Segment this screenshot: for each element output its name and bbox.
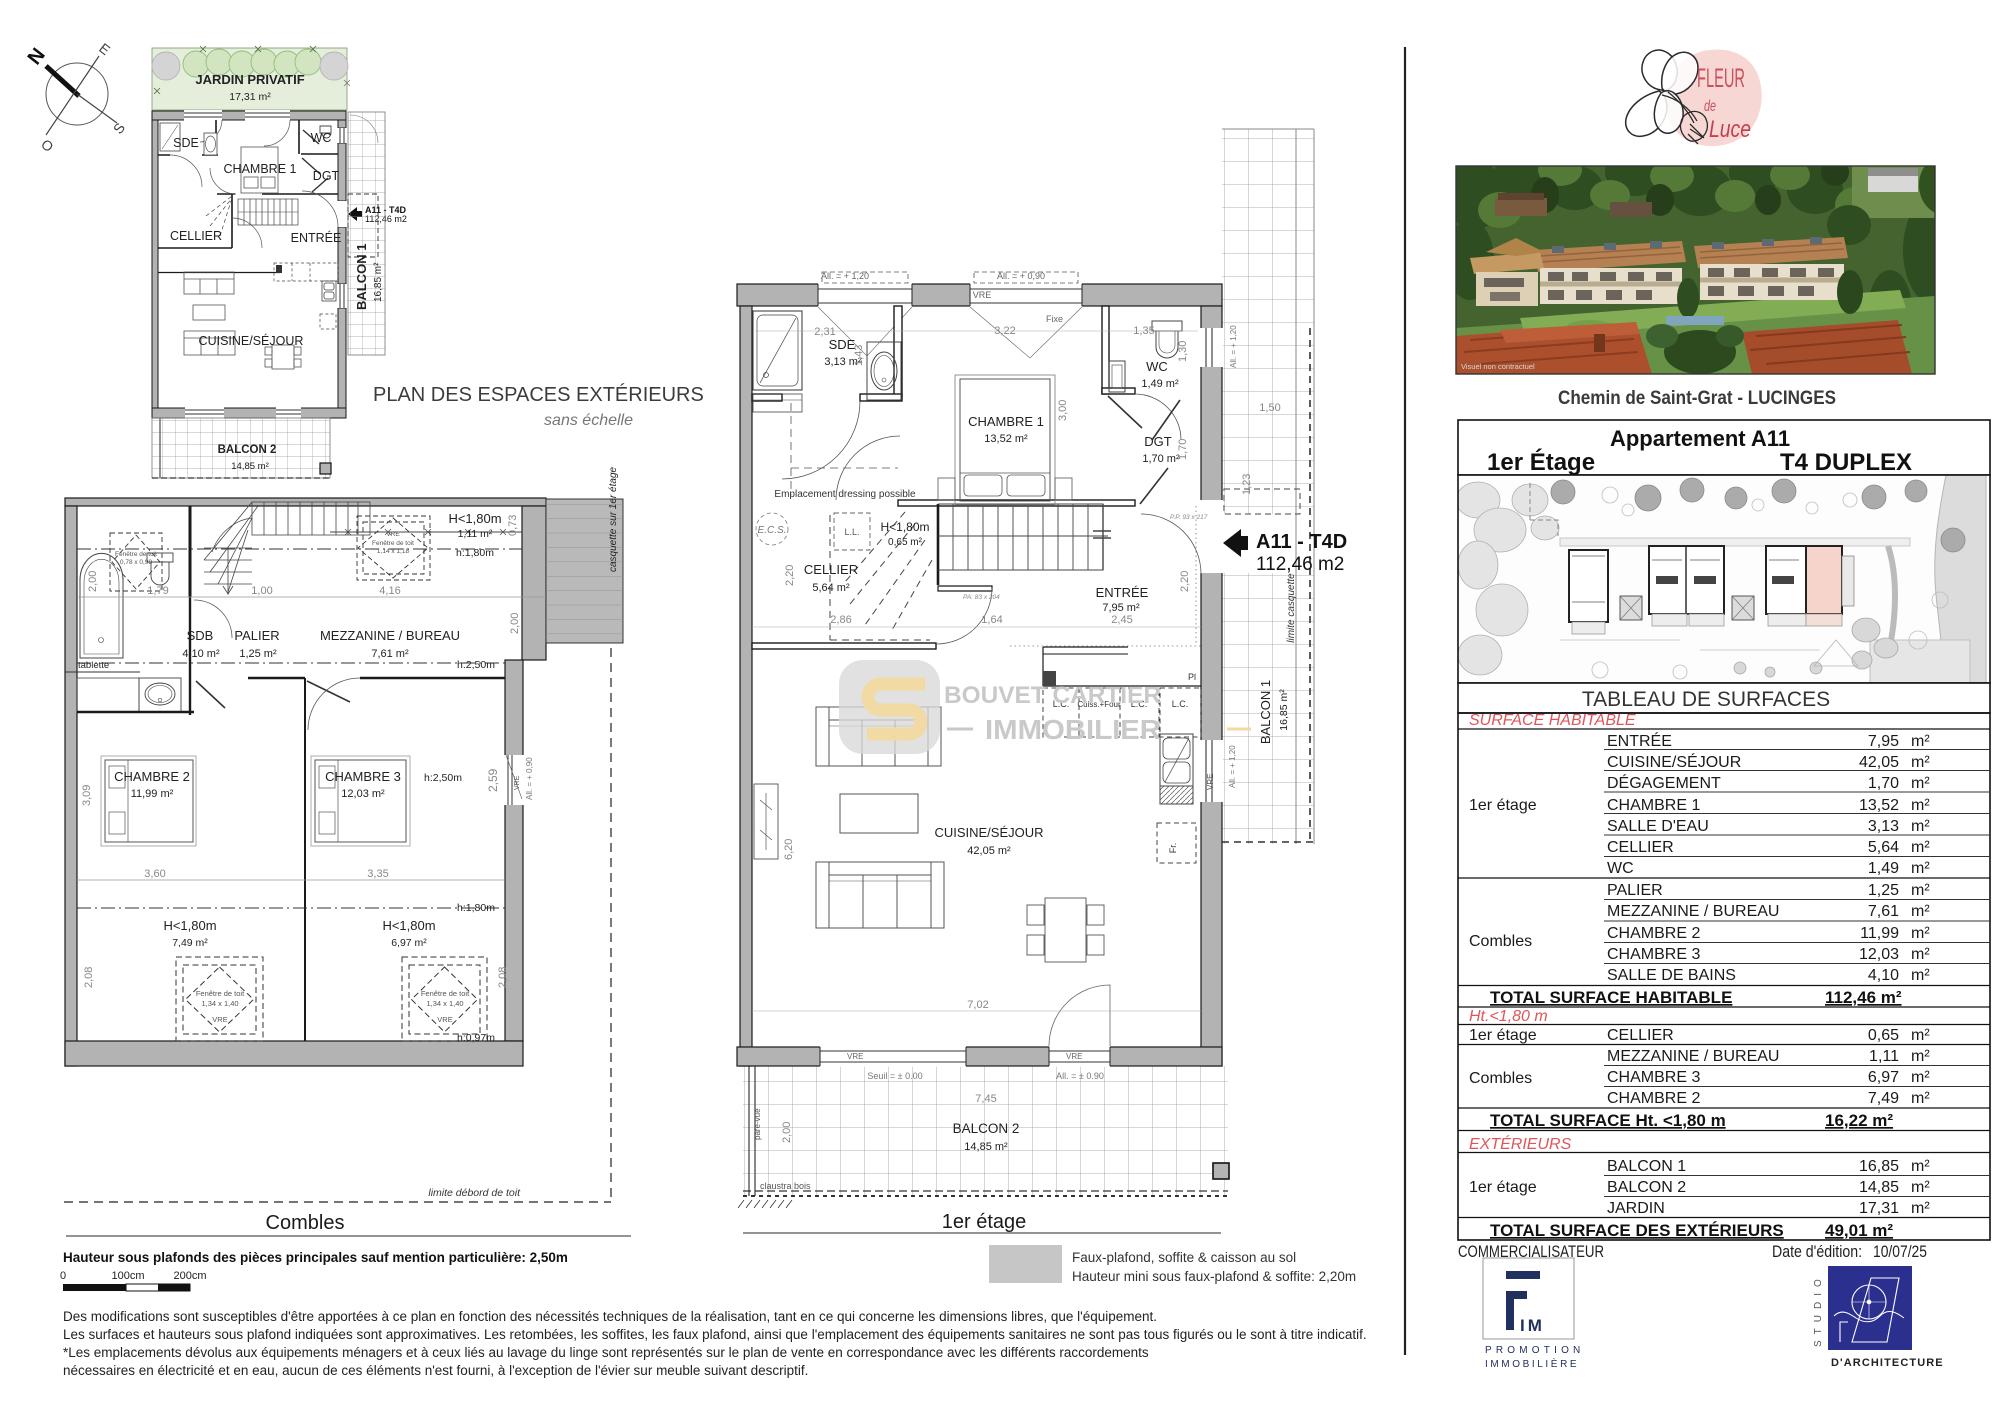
svg-text:Ht.<1,80 m: Ht.<1,80 m <box>1469 1008 1548 1025</box>
svg-text:13,52 m²: 13,52 m² <box>984 433 1028 445</box>
svg-text:ENTRÉE: ENTRÉE <box>1096 585 1149 600</box>
svg-text:BALCON 2: BALCON 2 <box>953 1121 1020 1136</box>
svg-text:IMMOBILIER: IMMOBILIER <box>985 714 1161 745</box>
svg-text:VRE: VRE <box>437 1015 452 1024</box>
svg-text:Fenêtre de toit: Fenêtre de toit <box>372 540 414 547</box>
svg-text:0,78 x 0,98: 0,78 x 0,98 <box>120 559 153 566</box>
svg-text:10/07/25: 10/07/25 <box>1873 1242 1927 1261</box>
svg-text:m²: m² <box>1911 1027 1930 1044</box>
svg-text:5,64 m²: 5,64 m² <box>812 582 850 594</box>
svg-text:1,64: 1,64 <box>981 614 1002 626</box>
svg-text:1,34 x 1,40: 1,34 x 1,40 <box>426 999 463 1008</box>
svg-text:3,22: 3,22 <box>994 325 1015 337</box>
svg-text:nécessaires en électricité et: nécessaires en électricité et en eau, au… <box>63 1363 808 1378</box>
svg-text:2,08: 2,08 <box>497 967 509 988</box>
svg-text:TABLEAU DE SURFACES: TABLEAU DE SURFACES <box>1582 688 1830 711</box>
svg-text:Hauteur mini sous faux-plafond: Hauteur mini sous faux-plafond & soffite… <box>1072 1269 1356 1284</box>
svg-text:16,22 m²: 16,22 m² <box>1825 1111 1893 1130</box>
svg-text:49,01 m²: 49,01 m² <box>1825 1221 1893 1240</box>
svg-text:Des modifications sont suscept: Des modifications sont susceptibles d'êt… <box>63 1309 1157 1324</box>
svg-text:3,09: 3,09 <box>81 785 93 806</box>
svg-text:All. = + 1,20: All. = + 1,20 <box>821 271 869 281</box>
svg-text:D'ARCHITECTURE: D'ARCHITECTURE <box>1831 1357 1944 1369</box>
svg-text:2,86: 2,86 <box>830 614 851 626</box>
svg-text:2,08: 2,08 <box>83 967 95 988</box>
svg-text:m²: m² <box>1911 967 1930 984</box>
svg-text:DGT: DGT <box>1144 434 1172 449</box>
svg-text:BALCON 2: BALCON 2 <box>218 444 277 456</box>
svg-text:m²: m² <box>1911 818 1930 835</box>
svg-text:7,02: 7,02 <box>967 999 988 1011</box>
svg-text:casquette sur 1er étage: casquette sur 1er étage <box>608 466 619 572</box>
svg-text:Fr.: Fr. <box>1168 843 1178 854</box>
svg-text:Emplacement dressing possible: Emplacement dressing possible <box>774 489 916 500</box>
svg-text:7,95: 7,95 <box>1868 733 1899 750</box>
svg-text:A11 - T4D: A11 - T4D <box>1256 531 1347 553</box>
svg-text:CUISINE/SÉJOUR: CUISINE/SÉJOUR <box>1607 752 1741 771</box>
svg-text:3,35: 3,35 <box>367 868 388 880</box>
svg-text:MEZZANINE / BUREAU: MEZZANINE / BUREAU <box>1607 1048 1779 1065</box>
svg-text:m²: m² <box>1911 1090 1930 1107</box>
svg-text:CHAMBRE 2: CHAMBRE 2 <box>1607 925 1700 942</box>
svg-text:1,43: 1,43 <box>853 345 865 366</box>
svg-text:VRE: VRE <box>386 531 400 538</box>
svg-text:1er étage: 1er étage <box>1469 1027 1537 1044</box>
svg-text:pare-vue: pare-vue <box>753 1108 762 1140</box>
svg-text:3,60: 3,60 <box>144 868 165 880</box>
svg-text:SDE: SDE <box>829 337 856 352</box>
svg-text:CHAMBRE 1: CHAMBRE 1 <box>224 162 297 176</box>
svg-text:12,03 m²: 12,03 m² <box>341 788 385 800</box>
svg-text:PALIER: PALIER <box>234 628 279 643</box>
svg-text:0: 0 <box>60 1270 66 1282</box>
svg-text:H<1,80m: H<1,80m <box>163 918 216 933</box>
svg-text:4,16: 4,16 <box>379 585 400 597</box>
svg-text:1,49: 1,49 <box>1868 860 1899 877</box>
svg-text:2,31: 2,31 <box>814 326 835 338</box>
svg-text:Appartement A11: Appartement A11 <box>1610 426 1790 451</box>
svg-text:BALCON 1: BALCON 1 <box>1258 680 1273 744</box>
svg-text:WC: WC <box>1607 860 1634 877</box>
svg-text:PA: 83 x 204: PA: 83 x 204 <box>963 594 1000 601</box>
svg-text:16,85 m²: 16,85 m² <box>1278 689 1290 731</box>
svg-text:L.L.: L.L. <box>844 527 859 537</box>
svg-text:Pl: Pl <box>1188 672 1196 682</box>
svg-text:CHAMBRE 2: CHAMBRE 2 <box>1607 1090 1700 1107</box>
svg-text:SURFACE HABITABLE: SURFACE HABITABLE <box>1469 712 1636 729</box>
svg-text:1er étage: 1er étage <box>942 1211 1027 1233</box>
svg-text:m²: m² <box>1911 1200 1930 1217</box>
svg-text:6,20: 6,20 <box>783 839 795 860</box>
svg-text:sans échelle: sans échelle <box>544 412 633 429</box>
svg-text:IMMOBILIÈRE: IMMOBILIÈRE <box>1485 1357 1579 1370</box>
svg-text:1,70 m²: 1,70 m² <box>1142 453 1180 465</box>
svg-text:0,65: 0,65 <box>1868 1027 1899 1044</box>
svg-text:Combles: Combles <box>266 1212 345 1234</box>
svg-text:7,49: 7,49 <box>1868 1090 1899 1107</box>
svg-text:42,05 m²: 42,05 m² <box>967 845 1011 857</box>
svg-text:m²: m² <box>1911 775 1930 792</box>
svg-text:14,85: 14,85 <box>1859 1179 1899 1196</box>
svg-text:STUDIO: STUDIO <box>1813 1273 1824 1347</box>
svg-text:h:2,50m: h:2,50m <box>424 772 462 784</box>
svg-text:All. = + 1,20: All. = + 1,20 <box>1229 325 1238 368</box>
svg-text:12,03: 12,03 <box>1859 946 1899 963</box>
svg-text:CELLIER: CELLIER <box>1607 1027 1674 1044</box>
svg-text:1,70: 1,70 <box>1868 775 1899 792</box>
svg-text:4,10 m²: 4,10 m² <box>182 648 220 660</box>
svg-text:m²: m² <box>1911 733 1930 750</box>
svg-text:CUISINE/SÉJOUR: CUISINE/SÉJOUR <box>199 333 304 348</box>
svg-text:1er Étage: 1er Étage <box>1487 448 1595 476</box>
svg-text:14,85 m²: 14,85 m² <box>231 461 269 472</box>
svg-text:7,49 m²: 7,49 m² <box>172 937 208 949</box>
svg-text:7,61: 7,61 <box>1868 903 1899 920</box>
svg-text:de: de <box>1704 98 1716 115</box>
svg-text:Fenêtre de toit: Fenêtre de toit <box>115 551 157 558</box>
svg-text:CUISINE/SÉJOUR: CUISINE/SÉJOUR <box>934 825 1043 840</box>
svg-text:m²: m² <box>1911 1158 1930 1175</box>
svg-text:Luce: Luce <box>1709 116 1751 143</box>
svg-text:BOUVET CARTIER: BOUVET CARTIER <box>944 682 1161 709</box>
svg-text:14,85 m²: 14,85 m² <box>964 1141 1008 1153</box>
svg-text:1,25 m²: 1,25 m² <box>239 648 277 660</box>
svg-text:1,00: 1,00 <box>251 585 272 597</box>
svg-text:Date d'édition:: Date d'édition: <box>1772 1242 1862 1261</box>
svg-text:16,85: 16,85 <box>1859 1158 1899 1175</box>
svg-text:L.C.: L.C. <box>1172 699 1189 709</box>
svg-text:17,31: 17,31 <box>1859 1200 1899 1217</box>
svg-text:H<1,80m: H<1,80m <box>448 511 501 526</box>
svg-text:Combles: Combles <box>1469 1070 1532 1087</box>
svg-text:P.P. 93 x 217: P.P. 93 x 217 <box>1170 514 1208 521</box>
svg-text:limite débord de toit: limite débord de toit <box>428 1187 521 1199</box>
svg-text:CHAMBRE 3: CHAMBRE 3 <box>1607 1069 1700 1086</box>
svg-text:CELLIER: CELLIER <box>1607 839 1674 856</box>
svg-text:EXTÉRIEURS: EXTÉRIEURS <box>1469 1134 1572 1153</box>
svg-text:T4 DUPLEX: T4 DUPLEX <box>1780 449 1912 476</box>
svg-text:1,50: 1,50 <box>1259 402 1280 414</box>
svg-text:JARDIN: JARDIN <box>1607 1200 1665 1217</box>
svg-text:1,11 m²: 1,11 m² <box>458 528 493 540</box>
svg-text:limite casquette: limite casquette <box>1286 573 1297 643</box>
svg-text:2,59: 2,59 <box>486 768 500 792</box>
svg-text:TOTAL SURFACE HABITABLE: TOTAL SURFACE HABITABLE <box>1490 988 1732 1007</box>
svg-text:16,85 m²: 16,85 m² <box>373 262 384 302</box>
svg-text:claustra bois: claustra bois <box>760 1181 811 1191</box>
svg-text:2,45: 2,45 <box>1111 614 1132 626</box>
svg-text:tablette: tablette <box>78 660 109 671</box>
svg-text:MEZZANINE / BUREAU: MEZZANINE / BUREAU <box>320 628 460 643</box>
svg-text:VRE: VRE <box>973 290 992 300</box>
svg-text:VRE: VRE <box>212 1015 227 1024</box>
svg-text:m²: m² <box>1911 860 1930 877</box>
svg-text:All. = ± 0.90: All. = ± 0.90 <box>1056 1071 1104 1081</box>
svg-text:Fenêtre de toit: Fenêtre de toit <box>196 989 245 998</box>
svg-text:H<1,80m: H<1,80m <box>880 520 929 534</box>
svg-text:TOTAL SURFACE Ht. <1,80 m: TOTAL SURFACE Ht. <1,80 m <box>1490 1111 1726 1130</box>
svg-text:6,97: 6,97 <box>1868 1069 1899 1086</box>
svg-text:42,05: 42,05 <box>1859 754 1899 771</box>
svg-text:SDB: SDB <box>187 628 214 643</box>
svg-text:VRE: VRE <box>1206 774 1215 790</box>
svg-text:7,45: 7,45 <box>975 1093 996 1105</box>
svg-text:CELLIER: CELLIER <box>170 229 222 243</box>
svg-text:1er étage: 1er étage <box>1469 1179 1537 1196</box>
svg-text:m²: m² <box>1911 903 1930 920</box>
svg-text:WC: WC <box>1146 359 1168 374</box>
svg-text:FLEUR: FLEUR <box>1697 63 1745 93</box>
svg-text:VRE: VRE <box>1066 1052 1082 1061</box>
svg-text:PROMOTION: PROMOTION <box>1485 1345 1584 1356</box>
svg-text:Fixe: Fixe <box>1046 314 1063 324</box>
svg-text:m²: m² <box>1911 1048 1930 1065</box>
svg-text:CELLIER: CELLIER <box>804 562 858 577</box>
svg-text:h:0,97m: h:0,97m <box>457 1032 495 1044</box>
svg-text:1,11: 1,11 <box>1869 1048 1899 1065</box>
svg-text:2,20: 2,20 <box>784 565 796 586</box>
svg-text:SALLE D'EAU: SALLE D'EAU <box>1607 818 1709 835</box>
svg-text:4,10: 4,10 <box>1868 967 1899 984</box>
svg-text:CHAMBRE 3: CHAMBRE 3 <box>325 769 401 784</box>
svg-text:ENTRÉE: ENTRÉE <box>291 230 342 245</box>
svg-text:m²: m² <box>1911 839 1930 856</box>
svg-text:All. = + 0,90: All. = + 0,90 <box>525 757 534 800</box>
svg-text:BALCON 2: BALCON 2 <box>1607 1179 1686 1196</box>
svg-text:CHAMBRE 1: CHAMBRE 1 <box>968 414 1044 429</box>
svg-text:Visuel non contractuel: Visuel non contractuel <box>1461 362 1535 371</box>
svg-text:CHAMBRE 2: CHAMBRE 2 <box>114 769 190 784</box>
svg-text:11,99 m²: 11,99 m² <box>131 788 174 800</box>
svg-text:VRE: VRE <box>847 1052 863 1061</box>
svg-text:DGT: DGT <box>313 169 340 183</box>
svg-text:200cm: 200cm <box>173 1270 206 1282</box>
svg-text:1,25: 1,25 <box>1868 882 1899 899</box>
svg-text:Combles: Combles <box>1469 933 1532 950</box>
svg-text:1,34 x 1,40: 1,34 x 1,40 <box>201 999 238 1008</box>
svg-text:h:1,80m: h:1,80m <box>457 902 495 914</box>
svg-text:Hauteur sous plafonds des pièc: Hauteur sous plafonds des pièces princip… <box>63 1250 568 1265</box>
svg-text:All. = + 0,90: All. = + 0,90 <box>997 271 1045 281</box>
svg-text:112,46 m2: 112,46 m2 <box>1256 554 1344 575</box>
svg-text:DÉGAGEMENT: DÉGAGEMENT <box>1607 773 1721 792</box>
svg-text:2,00: 2,00 <box>509 613 521 634</box>
svg-text:BALCON 1: BALCON 1 <box>1607 1158 1686 1175</box>
svg-text:Seuil = ± 0.00: Seuil = ± 0.00 <box>867 1071 922 1081</box>
svg-text:PALIER: PALIER <box>1607 882 1663 899</box>
svg-text:Les surfaces et hauteurs sous: Les surfaces et hauteurs sous plafond in… <box>63 1327 1367 1342</box>
svg-text:7,61 m²: 7,61 m² <box>371 648 409 660</box>
svg-text:BALCON 1: BALCON 1 <box>354 244 369 310</box>
svg-text:0,73: 0,73 <box>507 515 519 536</box>
svg-text:11,99: 11,99 <box>1860 925 1899 942</box>
svg-text:m²: m² <box>1911 925 1930 942</box>
svg-text:IM: IM <box>1520 1316 1545 1335</box>
svg-text:JARDIN PRIVATIF: JARDIN PRIVATIF <box>195 72 304 87</box>
svg-text:2,20: 2,20 <box>1179 571 1191 592</box>
svg-text:5,64: 5,64 <box>1868 839 1899 856</box>
svg-text:TOTAL SURFACE DES EXTÉRIEURS: TOTAL SURFACE DES EXTÉRIEURS <box>1490 1221 1784 1240</box>
svg-text:7,95 m²: 7,95 m² <box>1102 602 1140 614</box>
svg-text:112,46 m²: 112,46 m² <box>1825 988 1902 1007</box>
svg-text:WC: WC <box>311 131 332 145</box>
svg-text:All. = + 1,20: All. = + 1,20 <box>1228 745 1237 788</box>
svg-text:E.C.S.: E.C.S. <box>758 525 787 536</box>
svg-text:h:2,50m: h:2,50m <box>457 659 495 671</box>
svg-text:1,79: 1,79 <box>147 585 168 597</box>
svg-text:SALLE DE BAINS: SALLE DE BAINS <box>1607 967 1736 984</box>
svg-text:1,23: 1,23 <box>1241 474 1253 495</box>
svg-text:Chemin de Saint-Grat - LUCINGE: Chemin de Saint-Grat - LUCINGES <box>1558 388 1836 409</box>
svg-text:m²: m² <box>1911 754 1930 771</box>
svg-text:0,65 m²: 0,65 m² <box>888 537 923 548</box>
svg-text:VRE: VRE <box>514 775 521 790</box>
svg-text:1,35: 1,35 <box>1133 325 1154 337</box>
svg-text:PLAN DES ESPACES EXTÉRIEURS: PLAN DES ESPACES EXTÉRIEURS <box>373 383 704 406</box>
svg-text:3,00: 3,00 <box>1057 400 1069 421</box>
svg-text:2,00: 2,00 <box>781 1122 793 1143</box>
svg-text:CHAMBRE 1: CHAMBRE 1 <box>1607 797 1700 814</box>
svg-text:1er étage: 1er étage <box>1469 797 1537 814</box>
svg-text:ENTRÉE: ENTRÉE <box>1607 731 1672 750</box>
svg-text:MEZZANINE / BUREAU: MEZZANINE / BUREAU <box>1607 903 1779 920</box>
svg-text:H<1,80m: H<1,80m <box>382 918 435 933</box>
svg-text:17,31 m²: 17,31 m² <box>229 91 271 103</box>
svg-text:13,52: 13,52 <box>1859 797 1899 814</box>
svg-text:Faux-plafond, soffite & caisso: Faux-plafond, soffite & caisson au sol <box>1072 1250 1296 1265</box>
svg-text:m²: m² <box>1911 1179 1930 1196</box>
svg-text:m²: m² <box>1911 797 1930 814</box>
svg-text:CHAMBRE 3: CHAMBRE 3 <box>1607 946 1700 963</box>
svg-text:*Les emplacements dévolus aux: *Les emplacements dévolus aux équipement… <box>63 1345 1149 1360</box>
svg-text:1,70: 1,70 <box>1177 439 1189 460</box>
svg-text:m²: m² <box>1911 946 1930 963</box>
svg-text:Fenêtre de toit: Fenêtre de toit <box>421 989 470 998</box>
svg-text:h:1,80m: h:1,80m <box>456 547 494 559</box>
svg-text:6,97 m²: 6,97 m² <box>391 937 427 949</box>
svg-text:m²: m² <box>1911 1069 1930 1086</box>
svg-text:3,13: 3,13 <box>1868 818 1899 835</box>
svg-text:SDE: SDE <box>173 136 199 150</box>
svg-text:100cm: 100cm <box>111 1270 144 1282</box>
svg-text:1,30: 1,30 <box>1177 341 1189 362</box>
svg-text:2,00: 2,00 <box>87 571 99 592</box>
svg-text:1,49 m²: 1,49 m² <box>1141 378 1179 390</box>
svg-text:m²: m² <box>1911 882 1930 899</box>
